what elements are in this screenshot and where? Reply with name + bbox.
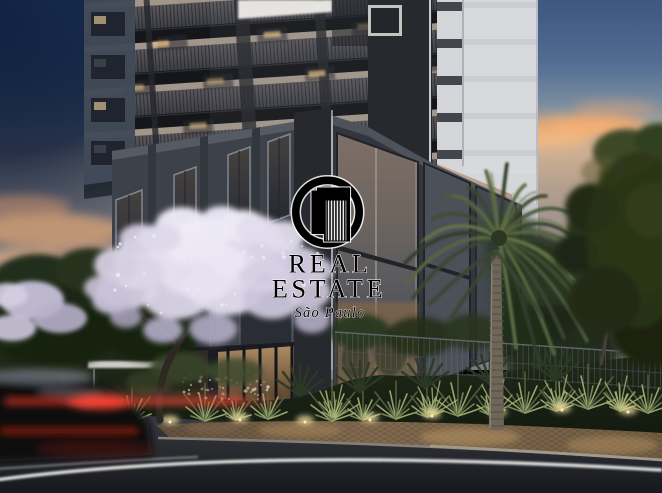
svg-text:ESTATE: ESTATE xyxy=(272,274,387,304)
svg-text:São Paulo: São Paulo xyxy=(295,305,366,321)
